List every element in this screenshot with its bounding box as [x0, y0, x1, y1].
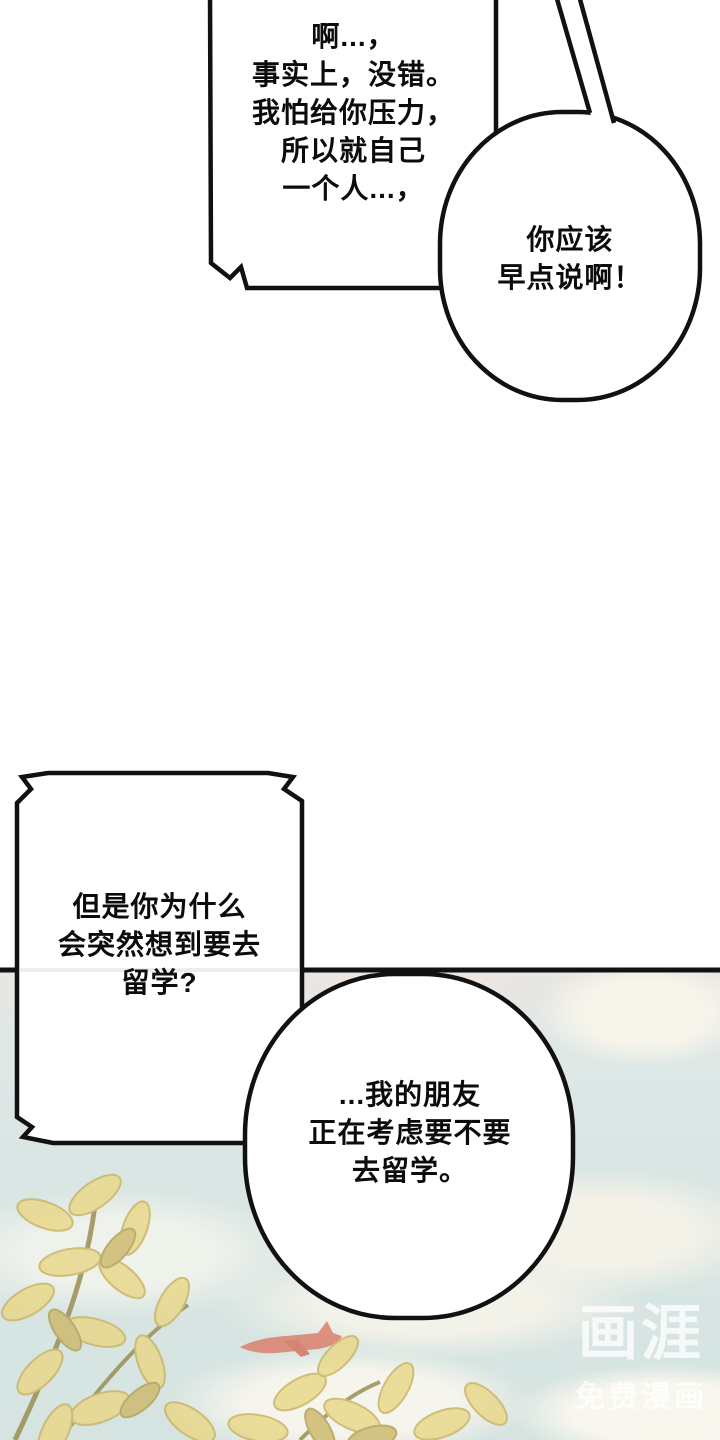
speech-text-rect-2: 但是你为什么 会突然想到要去 留学? [17, 888, 302, 1002]
panel-art [0, 0, 720, 1440]
bubble-text-line: 会突然想到要去 [17, 926, 302, 964]
bubble-text-line: 事实上，没错。 [210, 56, 497, 94]
bubble-text-line: 我怕给你压力， [210, 94, 497, 132]
speech-text-round-2: ...我的朋友 正在考虑要不要 去留学。 [245, 1076, 575, 1190]
speech-text-round-1: 你应该 早点说啊！ [440, 221, 700, 297]
bubble-text-line: 但是你为什么 [17, 888, 302, 926]
bubble-text-line: 一个人...， [210, 170, 497, 208]
bubble-text-line: 去留学。 [245, 1152, 575, 1190]
bubble-text-line: 啊...， [210, 18, 497, 56]
comic-page: 画涯 免费漫画 啊...， 事实上，没错。 我怕给你压力， 所以就自己 一个人.… [0, 0, 720, 1440]
bubble-text-line: 留学? [17, 964, 302, 1002]
bubble-text-line: 正在考虑要不要 [245, 1114, 575, 1152]
bubble-text-line: ...我的朋友 [245, 1076, 575, 1114]
bubble-text-line: 早点说啊！ [440, 259, 700, 297]
bubble-text-line: 你应该 [440, 221, 700, 259]
bubble-text-line: 所以就自己 [210, 132, 497, 170]
speech-text-rect-1: 啊...， 事实上，没错。 我怕给你压力， 所以就自己 一个人...， [210, 18, 497, 208]
